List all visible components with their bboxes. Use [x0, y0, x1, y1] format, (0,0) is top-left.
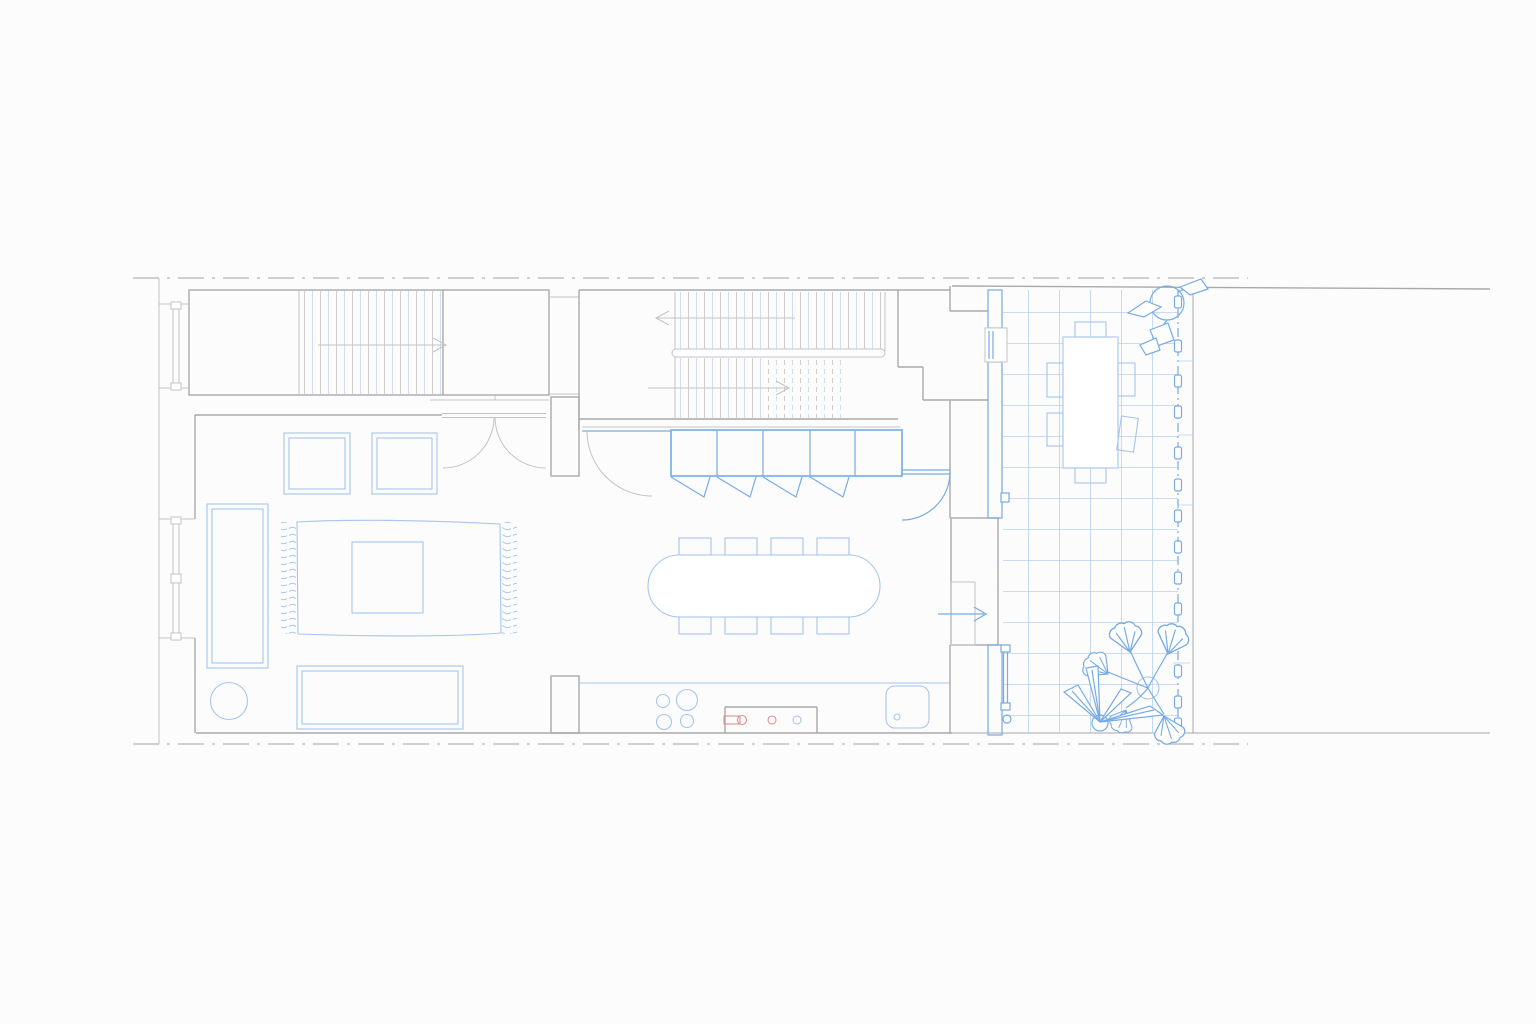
handrail: [672, 349, 885, 357]
kitchen-counter: [579, 645, 950, 733]
wall-pier: [551, 397, 579, 476]
outdoor-table: [1063, 337, 1118, 468]
dining-chair: [725, 538, 757, 555]
armchair: [284, 433, 350, 494]
stair-treads: [299, 291, 443, 394]
terrace-door: [902, 470, 950, 520]
sofa-vertical: [207, 504, 268, 668]
bifold-door-fronts: [671, 477, 849, 497]
dining-chair: [679, 617, 711, 634]
floor-plan-canvas: [0, 0, 1536, 1024]
rug-fringe: [281, 522, 296, 634]
hatched-wall-segment: [988, 290, 1002, 328]
living-room: [159, 397, 579, 733]
window-upper: [985, 328, 1007, 362]
armchair: [372, 433, 437, 494]
coffee-table: [352, 542, 423, 613]
rug: [281, 520, 517, 636]
hatched-wall-segment: [988, 362, 1002, 518]
wall-post: [1001, 493, 1009, 502]
window: [159, 302, 189, 390]
window: [159, 517, 195, 640]
faucet: [724, 716, 801, 725]
double-door: [442, 414, 546, 469]
kitchen-cabinets: [671, 430, 902, 476]
step-arrow: [938, 607, 986, 621]
stair-hall: [579, 286, 988, 430]
sink: [886, 686, 929, 728]
dining-chair: [817, 617, 849, 634]
dining-chair: [679, 538, 711, 555]
terrace: [985, 279, 1208, 748]
dining-chair: [771, 617, 803, 634]
door-swing: [587, 431, 652, 496]
upper-stair-run: [675, 292, 885, 350]
side-table-round: [211, 683, 248, 720]
dining-table: [648, 555, 880, 617]
rug-fringe: [502, 522, 517, 634]
dining-chair: [817, 538, 849, 555]
stair-corridor: [159, 290, 579, 400]
dining-chair: [725, 617, 757, 634]
sofa-horizontal: [297, 666, 463, 729]
hatched-wall-segment: [988, 645, 1002, 735]
hob-burners: [657, 690, 698, 730]
kitchen-pillar: [551, 676, 579, 733]
dining-chair: [771, 538, 803, 555]
side-return: [938, 518, 998, 645]
kitchen-dining: [579, 400, 950, 733]
site-wall-top: [952, 286, 1490, 289]
